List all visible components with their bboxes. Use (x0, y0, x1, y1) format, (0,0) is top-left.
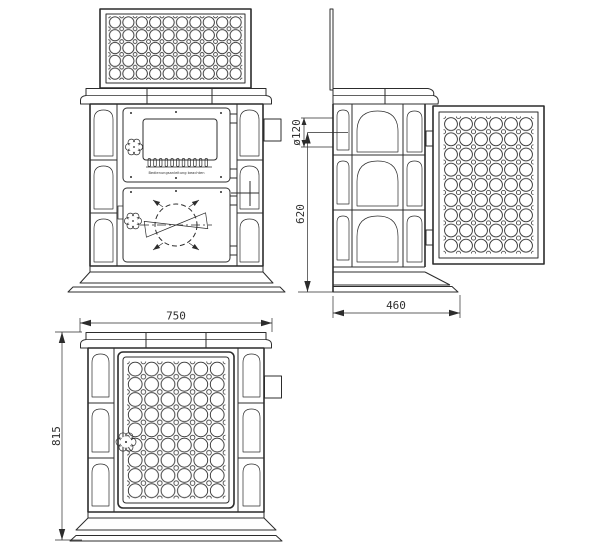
lower-door (118, 188, 237, 262)
depth-label: 460 (386, 299, 406, 312)
open-door-grille (426, 106, 544, 264)
dim-flue-height: 620 (294, 133, 348, 293)
door-hinge (426, 230, 433, 245)
door-hinge (230, 114, 237, 123)
tile-arches-left-closed (92, 354, 109, 506)
door-latch (118, 206, 123, 219)
door-window (143, 119, 217, 160)
front-view-lid-open: Bedienungsanleitung beachten (68, 9, 285, 292)
air-damper-dial (140, 200, 212, 250)
door-hinge (230, 169, 237, 178)
top-plate (81, 89, 272, 105)
base-pedestal-front (68, 266, 285, 292)
top-plate-side (333, 89, 438, 105)
side-knob-closed (265, 376, 282, 398)
base-pedestal-side (333, 272, 458, 292)
tile-arches-right-closed (243, 354, 260, 506)
upper-door: Bedienungsanleitung beachten (123, 108, 237, 182)
front-door-grille (116, 352, 234, 508)
dim-depth: 460 (333, 295, 460, 318)
dim-width: 750 (80, 310, 272, 333)
flue-height-label: 620 (294, 204, 307, 224)
door-hinge (230, 246, 237, 255)
height-label: 815 (50, 426, 63, 446)
top-plate-closed (81, 333, 272, 349)
side-knob (264, 119, 281, 141)
width-label: 750 (166, 310, 186, 323)
front-view-closed: 750 815 (50, 310, 282, 542)
stove-technical-drawing: Bedienungsanleitung beachten (0, 0, 600, 550)
side-view-door-open: ø120 620 460 (290, 9, 544, 318)
base-pedestal-closed (70, 512, 282, 541)
tile-arches-side (337, 110, 422, 262)
upper-door-knob (125, 139, 142, 155)
tile-arches-left (94, 110, 113, 262)
lid-grille-open (100, 9, 251, 88)
door-hinge (230, 196, 237, 205)
lid-edge (330, 9, 333, 90)
door-hinge (426, 131, 433, 146)
body-frame (90, 104, 263, 266)
dim-height: 815 (50, 332, 82, 540)
door-instruction-text: Bedienungsanleitung beachten (148, 171, 204, 175)
flue-diameter-label: ø120 (290, 119, 303, 146)
latch-handle (231, 181, 259, 206)
lower-door-knob (124, 213, 141, 229)
